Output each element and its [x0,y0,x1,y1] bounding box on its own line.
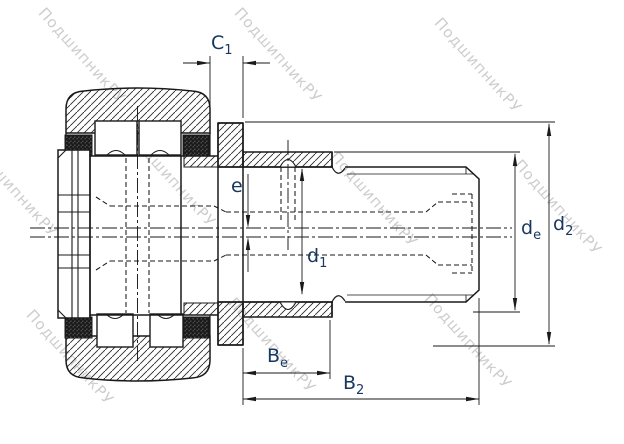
dim-label-de: de [521,219,541,242]
dim-label-e: e [231,177,243,200]
dimension-de [334,152,520,312]
dimension-d1 [300,168,304,295]
dimension-e [246,174,250,272]
end-washer [58,150,90,318]
dim-label-be: Be [267,347,288,370]
drawing-canvas: ПодшипникРУ ПодшипникРУ ПодшипникРУ Подш… [0,0,624,444]
threaded-stud [345,167,479,302]
dim-label-b2: B2 [343,374,364,397]
roller-elements [95,121,183,347]
dim-label-d2: d2 [553,215,573,238]
eccentric-collar [184,123,332,345]
dim-label-d1: d1 [307,247,327,270]
dim-label-c1: C1 [211,34,233,57]
hidden-lines [96,158,472,313]
